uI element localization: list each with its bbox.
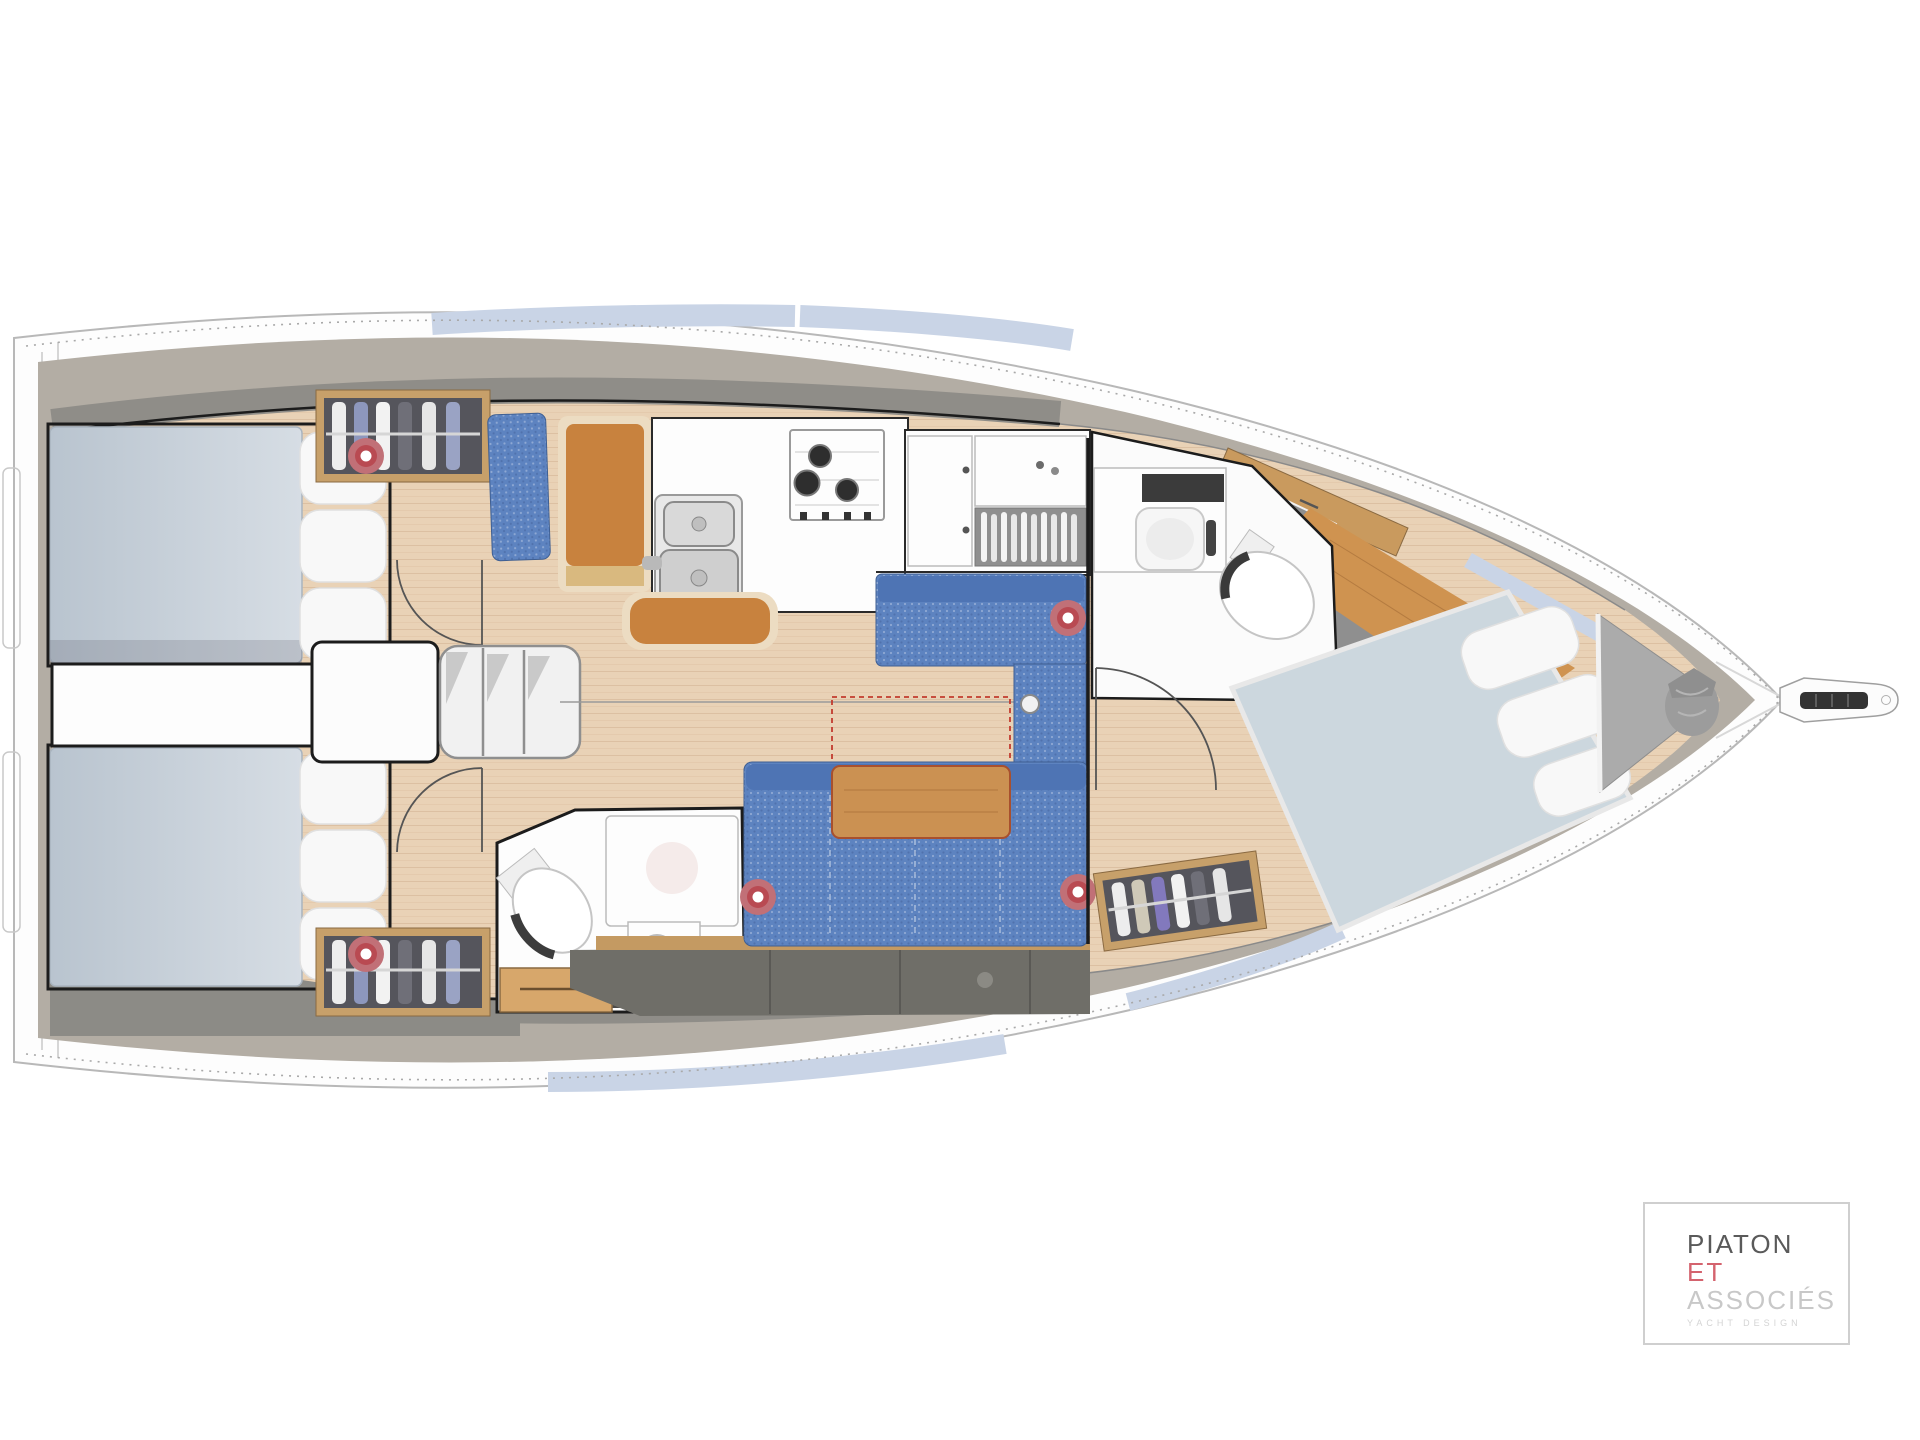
deck-hatch-marker	[740, 879, 776, 915]
hanging-clothes	[332, 940, 346, 1004]
aft-port-bed-shadow	[50, 640, 302, 663]
deck-hatch-marker	[348, 936, 384, 972]
deck-hatch-marker	[1060, 874, 1096, 910]
hanging-clothes	[446, 940, 460, 1004]
settee-corner-arm	[1014, 664, 1086, 766]
aft-port-wardrobe	[316, 390, 490, 482]
stove-burner	[795, 471, 820, 496]
stove-knob	[800, 512, 807, 520]
stove-burner	[809, 445, 831, 467]
engine-box	[52, 664, 312, 746]
chart-table-top	[566, 424, 644, 566]
hanging-clothes	[332, 402, 346, 470]
hanging-clothes	[398, 940, 412, 1004]
worktop-item	[1036, 461, 1044, 469]
bow-fitting	[1780, 678, 1898, 722]
stove-burner	[836, 479, 858, 501]
stove-knob	[864, 512, 871, 520]
settee-backrest	[878, 576, 1084, 602]
chart-table-edge	[566, 566, 644, 586]
nav-seat	[487, 413, 550, 561]
logo-tagline: YACHT DESIGN	[1687, 1318, 1848, 1328]
vanity-mirror-cabinet	[1142, 474, 1224, 502]
locker-latch	[977, 972, 993, 988]
galley-bench-cushion	[630, 598, 770, 644]
saloon-table	[832, 766, 1010, 838]
galley-stove	[790, 430, 884, 520]
under-sofa-lockers	[570, 946, 1090, 1016]
hanging-clothes	[446, 402, 460, 470]
plate-rack	[975, 508, 1086, 566]
mast-post	[1021, 695, 1039, 713]
fwd-head-sink-bowl	[1146, 518, 1194, 560]
floorplan-canvas	[0, 0, 1920, 1440]
hanging-clothes	[422, 940, 436, 1004]
hanging-clothes	[422, 402, 436, 470]
deck-hatch-marker	[1050, 600, 1086, 636]
aft-stbd-pillow	[300, 830, 386, 902]
aft-stbd-bed-mattress	[50, 748, 302, 986]
fwd-head-faucet	[1206, 520, 1216, 556]
logo-associates: ASSOCIÉS	[1687, 1286, 1848, 1314]
companionway-platform	[312, 642, 438, 762]
logo-name: PIATON	[1687, 1230, 1848, 1258]
sink-drain	[692, 517, 706, 531]
fridge-hinge	[963, 527, 970, 534]
yacht-floorplan-page: PIATON ET ASSOCIÉS YACHT DESIGN	[0, 0, 1920, 1440]
aft-port-bed-mattress	[50, 427, 302, 663]
anchor-roller	[1800, 692, 1868, 709]
worktop-item	[1051, 467, 1059, 475]
aft-port-pillow	[300, 510, 386, 582]
deck-hatch-marker	[348, 438, 384, 474]
logo-et: ET	[1687, 1258, 1848, 1286]
hanging-clothes	[398, 402, 412, 470]
stove-knob	[822, 512, 829, 520]
shower-drain-area	[646, 842, 698, 894]
fridge-hinge	[963, 467, 970, 474]
aft-stbd-wardrobe	[316, 928, 490, 1016]
galley-fridge-lid	[908, 436, 972, 566]
anchor-bulkhead	[1598, 614, 1600, 792]
galley-worktop	[975, 436, 1086, 506]
stove-knob	[844, 512, 851, 520]
designer-logo: PIATON ET ASSOCIÉS YACHT DESIGN	[1643, 1202, 1850, 1345]
sink-faucet	[642, 556, 662, 570]
sink-drain	[691, 570, 707, 586]
